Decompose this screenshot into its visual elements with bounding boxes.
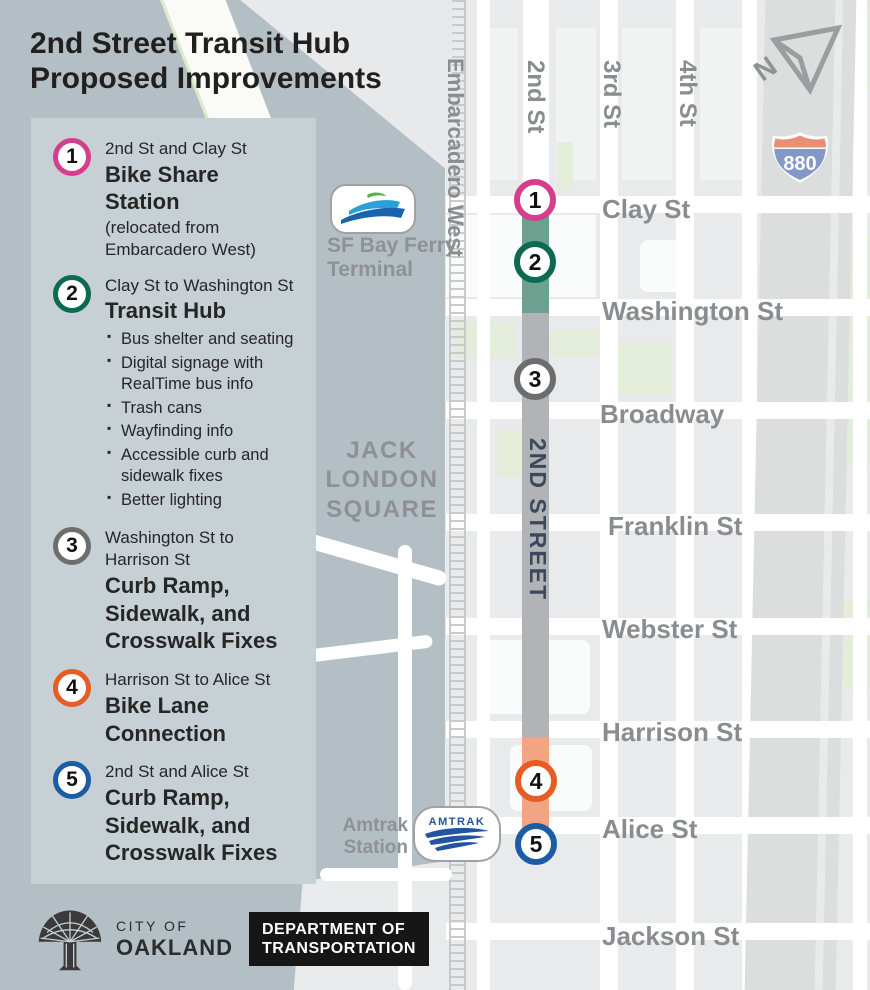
legend-location: Harrison St to Alice St [105,669,294,691]
marker-number: 3 [66,534,78,558]
legend-bullet: Digital signage with RealTime bus info [107,353,294,395]
street-label-embarcadero-west: Embarcadero West [442,58,468,257]
amtrak-logo-text: AMTRAK [429,816,486,828]
street-label-broadway: Broadway [600,399,724,430]
legend-bullet: Better lighting [107,490,294,511]
marker-number: 1 [529,187,542,214]
legend-bullet: Accessible curb and sidewalk fixes [107,445,294,487]
amtrak-station-label: Amtrak Station [336,815,408,859]
transit-hub-map-infographic: 2ND STREET 1 2 3 4 5 Clay St Washington … [0,0,870,990]
legend-item-text: 2nd St and Clay St Bike Share Station (r… [105,138,294,261]
map-marker-5: 5 [515,823,557,865]
street-label-alice: Alice St [602,814,697,845]
ferry-icon-card [330,184,416,234]
legend-location: Washington St to Harrison St [105,527,294,571]
ferry-boat-icon [337,189,409,229]
amtrak-logo-card: AMTRAK [413,806,501,862]
legend-marker-5: 5 [53,761,91,799]
legend-bullet-list: Bus shelter and seating Digital signage … [107,329,294,510]
corridor-label: 2ND STREET [524,438,551,601]
legend-title: Bike Share Station [105,161,294,216]
area-label-line: JACK [318,436,446,465]
ferry-terminal-label: SF Bay Ferry Terminal [327,234,457,282]
street-label-jackson: Jackson St [602,921,739,952]
park-area [614,342,672,394]
oakland-tree-logo [36,906,104,972]
legend-location: Clay St to Washington St [105,275,294,297]
map-block [700,28,744,180]
map-marker-4: 4 [515,760,557,802]
amtrak-label-line: Amtrak [336,815,408,837]
street-label-franklin: Franklin St [608,511,742,542]
legend-title: Curb Ramp, Sidewalk, and Crosswalk Fixes [105,784,294,867]
street-label-harrison: Harrison St [602,717,742,748]
map-marker-2: 2 [514,241,556,283]
map-block [622,28,672,180]
city-label-line2: OAKLAND [116,935,233,961]
city-of-oakland-label: CITY OF OAKLAND [116,918,233,961]
interstate-880-shield-icon: 880 [769,130,831,186]
legend-bullet: Bus shelter and seating [107,329,294,350]
legend-item-text: Harrison St to Alice St Bike Lane Connec… [105,669,294,747]
park-area [497,430,523,476]
street-band [320,868,452,881]
legend-location: 2nd St and Alice St [105,761,294,783]
area-label-line: SQUARE [318,495,446,524]
marker-number: 1 [66,145,78,169]
ferry-label-line: SF Bay Ferry [327,234,457,258]
legend-item-4: 4 Harrison St to Alice St Bike Lane Conn… [53,669,294,747]
park-area [557,142,573,190]
city-label-line1: CITY OF [116,918,233,934]
marker-number: 5 [66,768,78,792]
dept-line1: DEPARTMENT OF [262,920,416,939]
footer-logos: CITY OF OAKLAND DEPARTMENT OF TRANSPORTA… [36,906,429,972]
legend-item-text: Clay St to Washington St Transit Hub Bus… [105,275,294,514]
ferry-label-line: Terminal [327,258,457,282]
amtrak-label-line: Station [336,837,408,859]
legend-panel: 1 2nd St and Clay St Bike Share Station … [31,118,316,884]
legend-item-text: Washington St to Harrison St Curb Ramp, … [105,527,294,655]
department-of-transportation-badge: DEPARTMENT OF TRANSPORTATION [249,912,429,966]
map-marker-1: 1 [514,179,556,221]
legend-marker-1: 1 [53,138,91,176]
marker-number: 5 [530,831,543,858]
legend-item-text: 2nd St and Alice St Curb Ramp, Sidewalk,… [105,761,294,867]
legend-marker-2: 2 [53,275,91,313]
marker-number: 2 [529,249,542,276]
north-letter: N [750,50,782,87]
legend-title: Transit Hub [105,297,294,325]
street-label-2nd-st: 2nd St [521,60,549,133]
marker-number: 3 [529,366,542,393]
legend-marker-3: 3 [53,527,91,565]
legend-location: 2nd St and Clay St [105,138,294,160]
legend-item-3: 3 Washington St to Harrison St Curb Ramp… [53,527,294,655]
legend-item-5: 5 2nd St and Alice St Curb Ramp, Sidewal… [53,761,294,867]
street-label-4th-st: 4th St [673,60,701,127]
street-label-clay: Clay St [602,194,690,225]
park-area [549,330,601,356]
legend-item-2: 2 Clay St to Washington St Transit Hub B… [53,275,294,514]
street-label-washington: Washington St [602,296,783,327]
marker-number: 4 [66,676,78,700]
street-label-3rd-st: 3rd St [597,60,625,128]
street-band [853,0,867,990]
street-label-webster: Webster St [602,614,737,645]
page-title: 2nd Street Transit Hub Proposed Improvem… [30,26,382,96]
amtrak-logo-icon: AMTRAK [417,810,497,858]
area-label-jack-london-square: JACK LONDON SQUARE [318,436,446,524]
legend-bullet: Wayfinding info [107,421,294,442]
legend-title: Curb Ramp, Sidewalk, and Crosswalk Fixes [105,572,294,655]
dept-line2: TRANSPORTATION [262,939,416,958]
north-arrow-icon: N [750,20,845,105]
map-marker-3: 3 [514,358,556,400]
area-label-line: LONDON [318,465,446,494]
legend-item-1: 1 2nd St and Clay St Bike Share Station … [53,138,294,261]
marker-number: 4 [530,768,543,795]
shield-number: 880 [783,153,816,175]
legend-title: Bike Lane Connection [105,692,294,747]
marker-number: 2 [66,282,78,306]
title-line-2: Proposed Improvements [30,61,382,96]
legend-bullet: Trash cans [107,398,294,419]
legend-marker-4: 4 [53,669,91,707]
legend-note: (relocated from Embarcadero West) [105,217,294,261]
title-line-1: 2nd Street Transit Hub [30,26,382,61]
